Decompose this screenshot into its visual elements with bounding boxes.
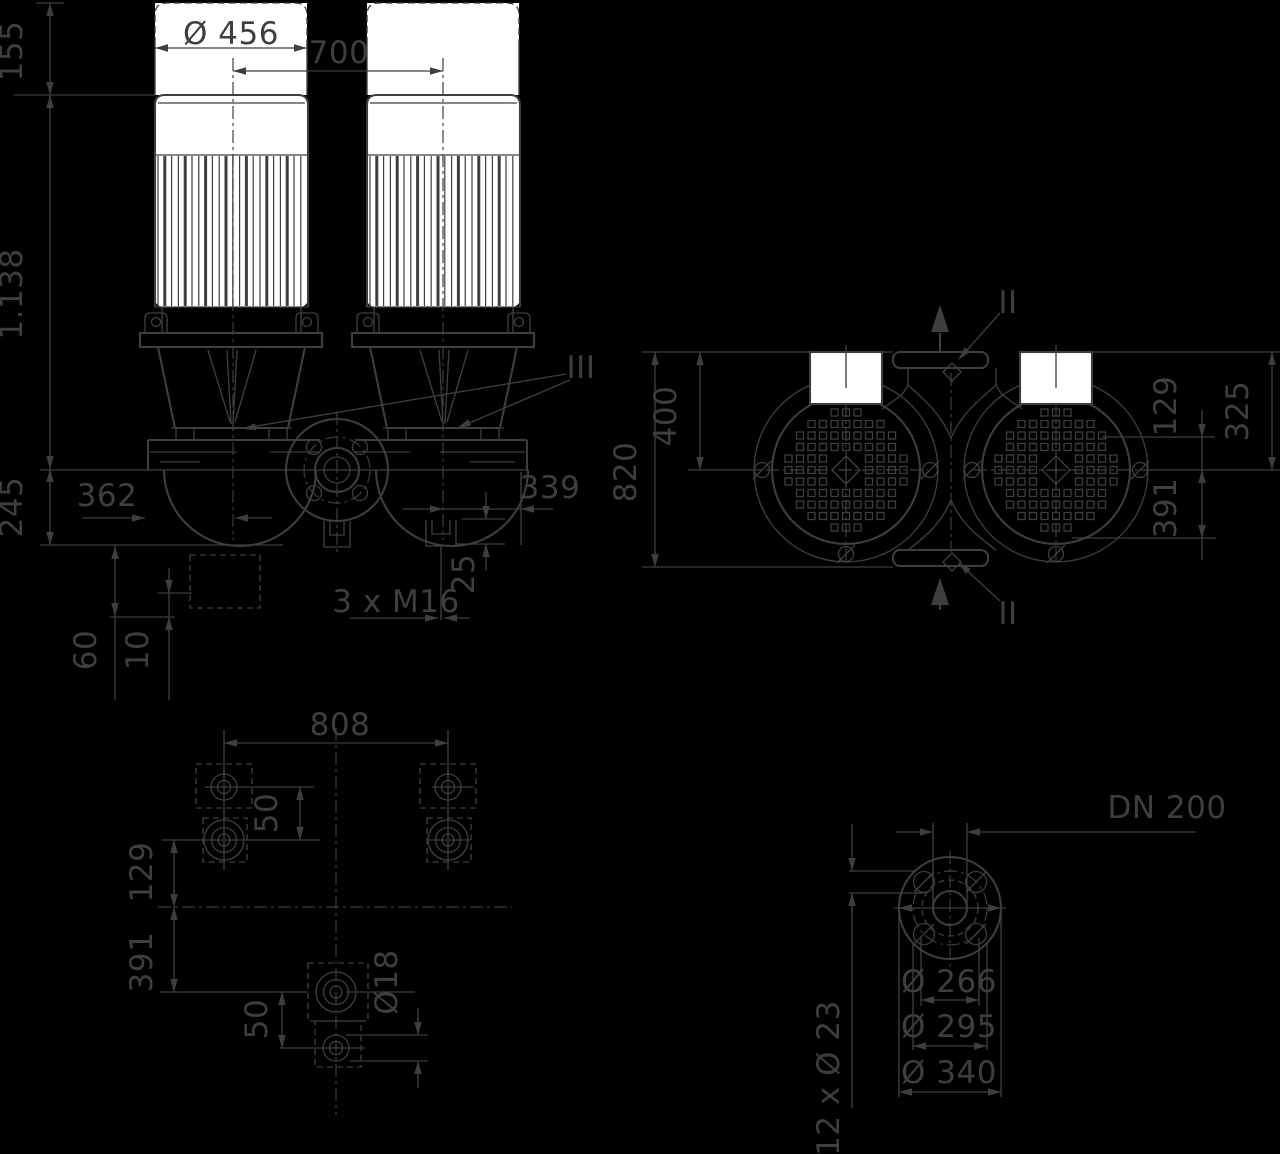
dim-label-10: 10 bbox=[120, 630, 156, 670]
dim-label-820: 820 bbox=[608, 442, 644, 503]
dim-label-400: 400 bbox=[648, 386, 684, 447]
section-label-ii-top: II bbox=[998, 285, 1017, 321]
dim-label-456: Ø 456 bbox=[183, 16, 279, 52]
dim-label-1138: 1.138 bbox=[0, 248, 30, 339]
dim-label-129-plan: 129 bbox=[124, 842, 160, 903]
flange-detail-view bbox=[899, 851, 1001, 967]
technical-drawing-canvas: Ø 456 700 155 1.138 245 362 339 3 x M16 … bbox=[0, 0, 1280, 1154]
dim-label-391-top: 391 bbox=[1148, 478, 1184, 539]
dim-label-50-lower: 50 bbox=[239, 999, 275, 1039]
dim-label-155: 155 bbox=[0, 21, 30, 82]
dim-label-362: 362 bbox=[77, 478, 138, 514]
dim-label-o340: Ø 340 bbox=[901, 1055, 997, 1091]
dim-label-245: 245 bbox=[0, 477, 30, 538]
dim-label-808: 808 bbox=[310, 707, 371, 743]
dim-label-12xo23: 12 x Ø 23 bbox=[811, 1000, 847, 1154]
dim-label-25: 25 bbox=[446, 554, 482, 594]
dim-label-50-upper: 50 bbox=[249, 793, 285, 833]
plan-view bbox=[158, 728, 512, 1115]
pump-dimensional-drawing: Ø 456 700 155 1.138 245 362 339 3 x M16 … bbox=[0, 0, 1280, 1154]
section-label-iii: III bbox=[567, 350, 596, 386]
dim-label-o295: Ø 295 bbox=[901, 1009, 997, 1045]
dim-label-dn200: DN 200 bbox=[1107, 790, 1226, 826]
dim-label-60: 60 bbox=[68, 630, 104, 670]
dim-label-o266: Ø 266 bbox=[901, 964, 997, 1000]
dim-label-391-plan: 391 bbox=[124, 932, 160, 993]
dim-label-3xm16: 3 x M16 bbox=[332, 584, 459, 620]
dim-label-325: 325 bbox=[1220, 381, 1256, 442]
section-label-ii-bottom: II bbox=[998, 596, 1017, 632]
dim-label-700: 700 bbox=[309, 35, 370, 71]
dim-label-o18: Ø18 bbox=[369, 949, 405, 1014]
dim-label-339: 339 bbox=[520, 470, 581, 506]
dim-label-129-top: 129 bbox=[1148, 376, 1184, 437]
top-view bbox=[753, 305, 1149, 610]
